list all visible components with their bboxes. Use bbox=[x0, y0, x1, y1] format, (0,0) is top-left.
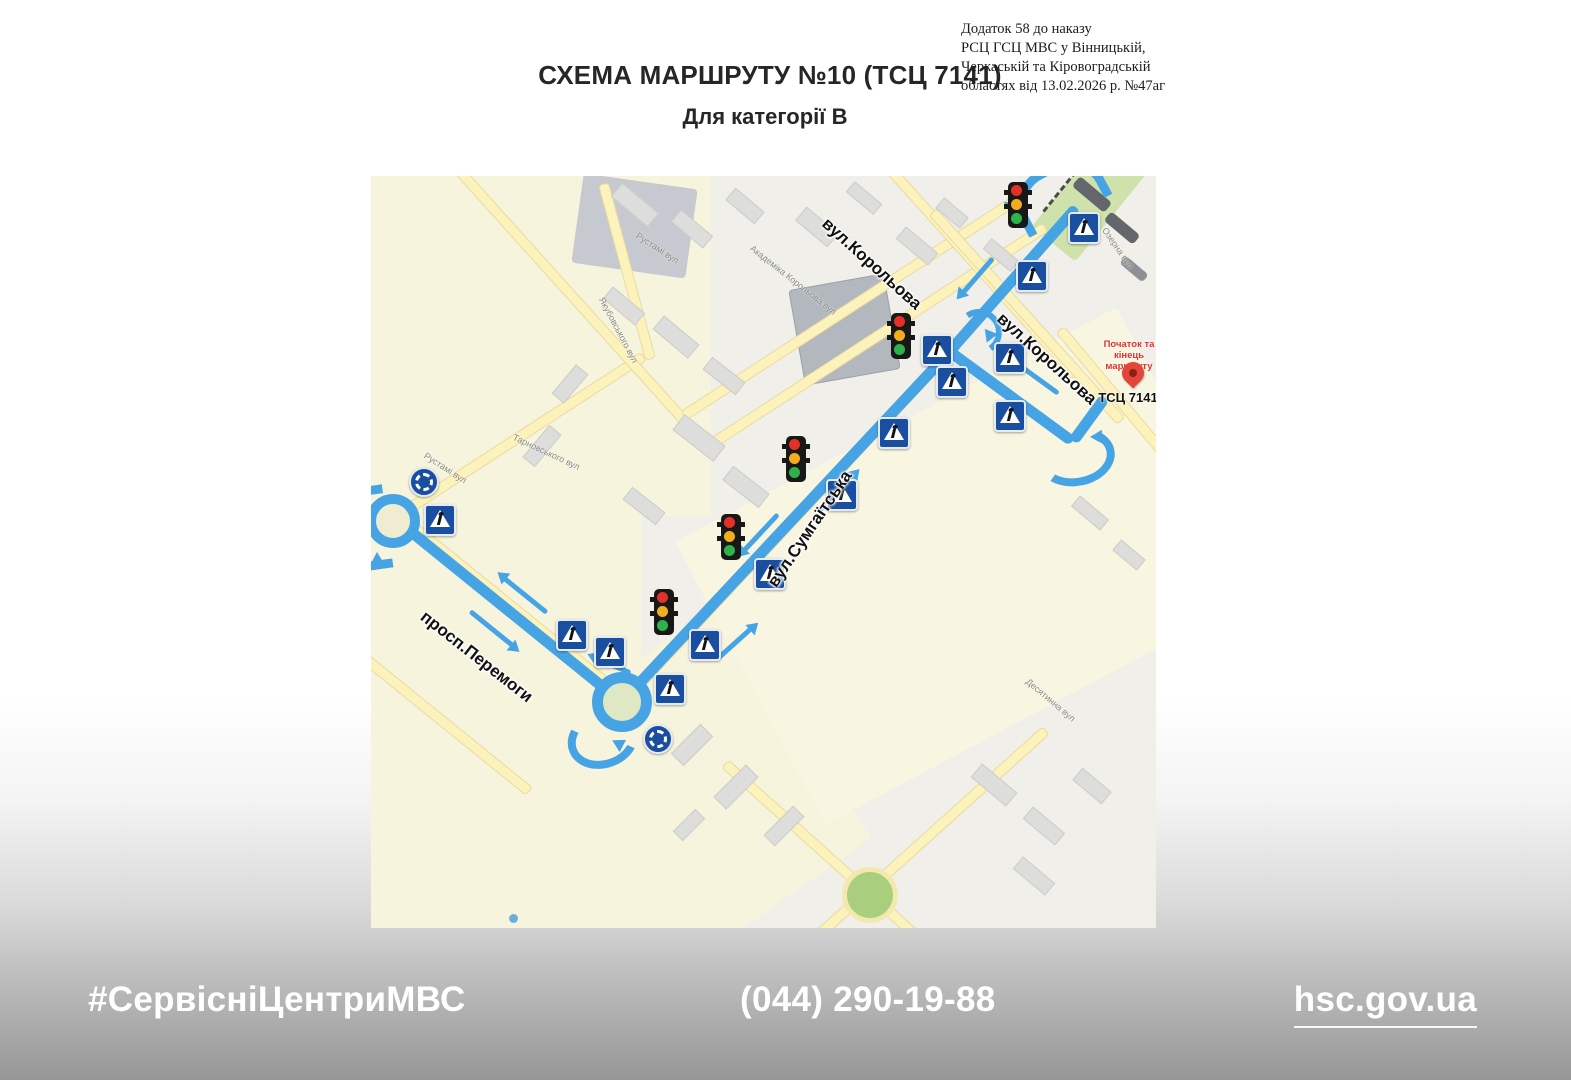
route-arrow bbox=[716, 627, 753, 661]
pedestrian-crossing-sign-icon bbox=[654, 673, 686, 705]
pedestrian-crossing-sign-icon bbox=[1016, 260, 1048, 292]
route-map: вул.Корольова вул.Корольова вул.Сумгаїтс… bbox=[371, 176, 1156, 928]
annotation-line: областях від 13.02.2026 р. №47аг bbox=[961, 77, 1176, 96]
pedestrian-crossing-sign-icon bbox=[594, 636, 626, 668]
roundabout-sign-icon bbox=[643, 724, 673, 754]
pedestrian-crossing-sign-icon bbox=[556, 619, 588, 651]
tsc-label: ТСЦ 7141 bbox=[1078, 390, 1156, 405]
route-segment-sumhaitska bbox=[618, 348, 954, 706]
pedestrian-crossing-sign-icon bbox=[994, 400, 1026, 432]
order-annotation: Додаток 58 до наказу РСЦ ГСЦ МВС у Вінни… bbox=[961, 20, 1176, 96]
annotation-line: Додаток 58 до наказу bbox=[961, 20, 1176, 39]
page-subtitle: Для категорії В bbox=[0, 104, 1530, 130]
traffic-light-icon bbox=[1006, 182, 1030, 228]
traffic-light-icon bbox=[889, 313, 913, 359]
roundabout-sign-icon bbox=[409, 467, 439, 497]
pedestrian-crossing-sign-icon bbox=[878, 417, 910, 449]
footer-hashtag: #СервісніЦентриМВС bbox=[88, 980, 466, 1020]
route-arrow bbox=[961, 257, 995, 295]
pedestrian-crossing-sign-icon bbox=[921, 334, 953, 366]
annotation-line: РСЦ ГСЦ МВС у Вінницькій, bbox=[961, 39, 1176, 58]
footer-phone: (044) 290-19-88 bbox=[740, 980, 996, 1020]
traffic-light-icon bbox=[652, 589, 676, 635]
traffic-light-icon bbox=[719, 514, 743, 560]
annotation-line: Черкаській та Кіровоградській bbox=[961, 58, 1176, 77]
page-title: СХЕМА МАРШРУТУ №10 (ТСЦ 7141) bbox=[0, 60, 1540, 91]
pedestrian-crossing-sign-icon bbox=[689, 629, 721, 661]
pedestrian-crossing-sign-icon bbox=[936, 366, 968, 398]
pedestrian-crossing-sign-icon bbox=[424, 504, 456, 536]
footer-website-link[interactable]: hsc.gov.ua bbox=[1294, 980, 1477, 1028]
pedestrian-crossing-sign-icon bbox=[1068, 212, 1100, 244]
traffic-light-icon bbox=[784, 436, 808, 482]
